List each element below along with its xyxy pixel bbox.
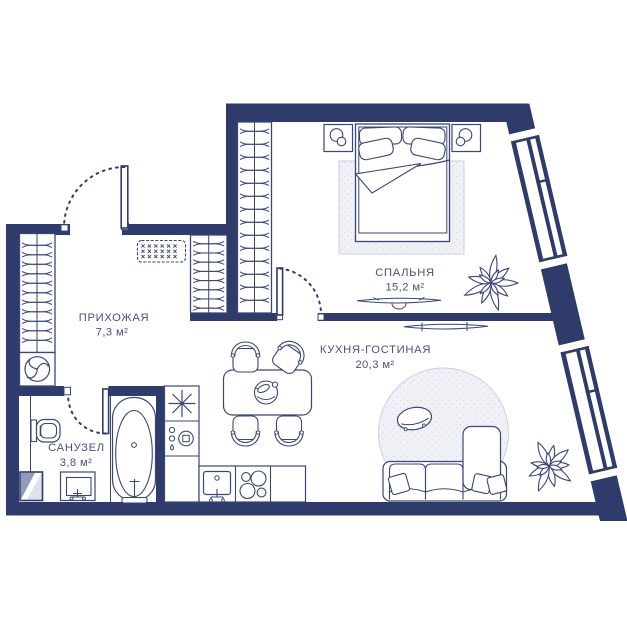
svg-text:15,2 м²: 15,2 м² (385, 282, 424, 294)
svg-text:СПАЛЬНЯ: СПАЛЬНЯ (375, 267, 435, 279)
svg-text:ПРИХОЖАЯ: ПРИХОЖАЯ (79, 312, 150, 324)
svg-text:КУХНЯ-ГОСТИНАЯ: КУХНЯ-ГОСТИНАЯ (320, 344, 431, 356)
svg-text:7,3 м²: 7,3 м² (96, 327, 128, 339)
svg-text:3,8 м²: 3,8 м² (60, 457, 92, 469)
svg-text:САНУЗЕЛ: САНУЗЕЛ (48, 442, 105, 454)
svg-text:20,3 м²: 20,3 м² (355, 359, 394, 371)
